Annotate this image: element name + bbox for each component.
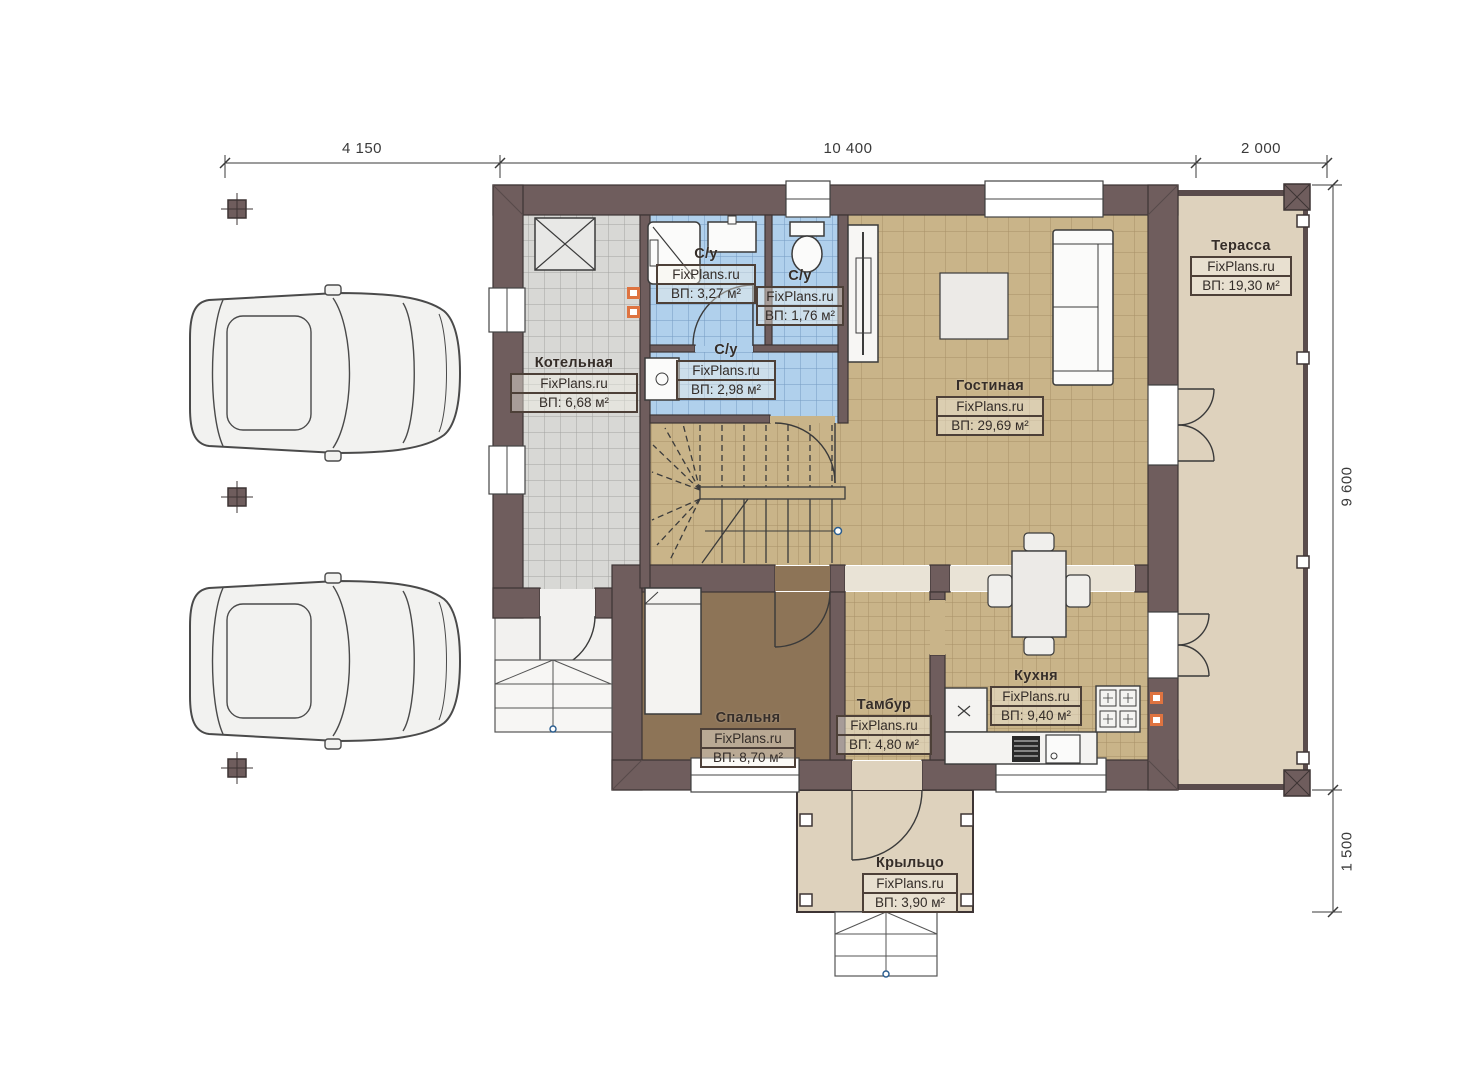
terrace-corner-post [1284, 184, 1310, 210]
dim-top-3: 2 000 [1228, 140, 1294, 157]
room-info-box: FixPlans.ru ВП: 9,40 м² [990, 686, 1082, 726]
terrace-door-opening-living [1148, 385, 1178, 465]
room-info-box: FixPlans.ru ВП: 4,80 м² [836, 715, 932, 755]
stair-rail [700, 487, 845, 499]
room-name: С/у [656, 246, 756, 262]
room-label-tambur: Тамбур FixPlans.ru ВП: 4,80 м² [836, 697, 932, 755]
room-name: Крыльцо [862, 855, 958, 871]
sofa [1053, 230, 1113, 385]
room-label-su-shower: С/у FixPlans.ru ВП: 3,27 м² [656, 246, 756, 304]
room-area: ВП: 29,69 м² [938, 417, 1042, 434]
room-info-box: FixPlans.ru ВП: 29,69 м² [936, 396, 1044, 436]
room-label-su-lower: С/у FixPlans.ru ВП: 2,98 м² [676, 342, 776, 400]
room-info-box: FixPlans.ru ВП: 6,68 м² [510, 373, 638, 413]
room-watermark: FixPlans.ru [1192, 258, 1290, 277]
room-area: ВП: 19,30 м² [1192, 277, 1290, 294]
toilet [790, 222, 824, 272]
bed [645, 588, 701, 714]
terrace-door-opening-kitchen [1148, 612, 1178, 678]
side-entrance-steps [495, 660, 612, 732]
terrace-corner-post [1284, 770, 1310, 796]
room-name: Кухня [990, 668, 1082, 684]
room-info-box: FixPlans.ru ВП: 1,76 м² [756, 286, 844, 326]
room-watermark: FixPlans.ru [702, 730, 794, 749]
room-area: ВП: 2,98 м² [678, 381, 774, 398]
porch-steps [835, 912, 937, 977]
car-2 [190, 573, 460, 749]
room-info-box: FixPlans.ru ВП: 3,27 м² [656, 264, 756, 304]
kitchen-sink [1046, 735, 1080, 763]
room-area: ВП: 3,90 м² [864, 894, 956, 911]
room-label-terassa: Терасса FixPlans.ru ВП: 19,30 м² [1190, 238, 1292, 296]
room-area: ВП: 9,40 м² [992, 707, 1080, 724]
room-info-box: FixPlans.ru ВП: 19,30 м² [1190, 256, 1292, 296]
room-name: Спальня [700, 710, 796, 726]
front-door-opening [852, 761, 922, 790]
parking [190, 193, 460, 784]
tambur-kitchen-opening [930, 600, 945, 655]
room-watermark: FixPlans.ru [938, 398, 1042, 417]
vent-shaft [535, 218, 595, 270]
room-name: Гостиная [936, 378, 1044, 394]
stove [1096, 686, 1140, 732]
dim-top-2: 10 400 [810, 140, 886, 157]
room-info-box: FixPlans.ru ВП: 8,70 м² [700, 728, 796, 768]
bedroom-door-opening [775, 566, 830, 591]
room-watermark: FixPlans.ru [992, 688, 1080, 707]
room-watermark: FixPlans.ru [864, 875, 956, 894]
room-name: Терасса [1190, 238, 1292, 254]
room-watermark: FixPlans.ru [838, 717, 930, 736]
floor-plan-page: 4 150 10 400 2 000 9 600 1 500 Котельная… [0, 0, 1473, 1080]
room-watermark: FixPlans.ru [678, 362, 774, 381]
room-info-box: FixPlans.ru ВП: 3,90 м² [862, 873, 958, 913]
coffee-table [940, 273, 1008, 339]
dim-right-1: 9 600 [1339, 452, 1356, 522]
room-info-box: FixPlans.ru ВП: 2,98 м² [676, 360, 776, 400]
room-watermark: FixPlans.ru [658, 266, 754, 285]
dim-right-2: 1 500 [1339, 817, 1356, 887]
room-area: ВП: 1,76 м² [758, 307, 842, 324]
room-name: Тамбур [836, 697, 932, 713]
room-watermark: FixPlans.ru [512, 375, 636, 394]
tambur-passage [845, 566, 930, 591]
room-area: ВП: 4,80 м² [838, 736, 930, 753]
room-area: ВП: 3,27 м² [658, 285, 754, 302]
floor-plan-drawing [0, 0, 1473, 1080]
floors [495, 190, 1308, 912]
bath3-door-opening [770, 416, 835, 423]
room-label-spalnya: Спальня FixPlans.ru ВП: 8,70 м² [700, 710, 796, 768]
room-name: Котельная [510, 355, 638, 371]
washing-machine [645, 358, 679, 400]
room-label-krylco: Крыльцо FixPlans.ru ВП: 3,90 м² [862, 855, 958, 913]
room-name: С/у [676, 342, 776, 358]
room-label-gostinaya: Гостиная FixPlans.ru ВП: 29,69 м² [936, 378, 1044, 436]
room-area: ВП: 8,70 м² [702, 749, 794, 766]
room-watermark: FixPlans.ru [758, 288, 842, 307]
room-name: С/у [756, 268, 844, 284]
wardrobe [848, 225, 878, 362]
dishwasher [1012, 736, 1040, 762]
car-1 [190, 285, 460, 461]
dim-top-1: 4 150 [330, 140, 394, 157]
room-label-kotelnaya: Котельная FixPlans.ru ВП: 6,68 м² [510, 355, 638, 413]
room-label-su-wc: С/у FixPlans.ru ВП: 1,76 м² [756, 268, 844, 326]
side-door-opening [540, 589, 595, 617]
room-area: ВП: 6,68 м² [512, 394, 636, 411]
room-label-kuhnya: Кухня FixPlans.ru ВП: 9,40 м² [990, 668, 1082, 726]
stair-direction-dot [835, 528, 842, 535]
